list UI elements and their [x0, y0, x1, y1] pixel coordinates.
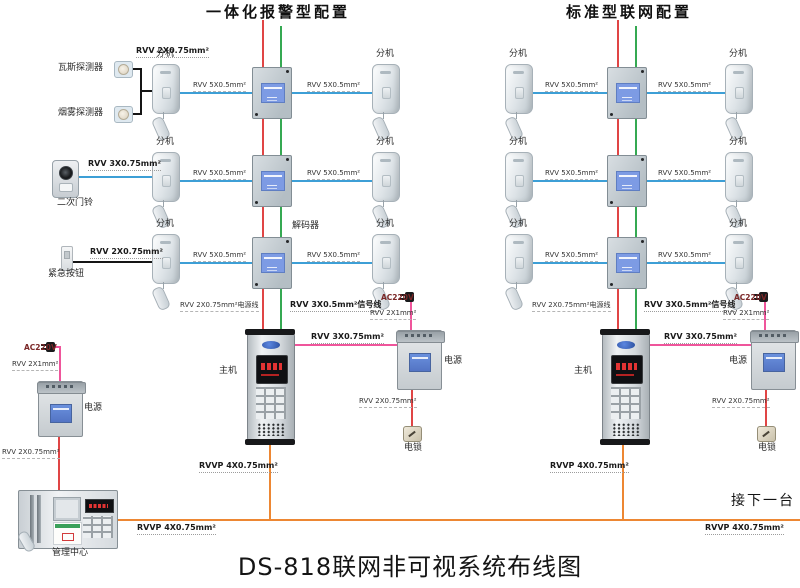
doorbell-station-icon	[52, 160, 79, 198]
extension-phone	[725, 64, 751, 140]
decoder-label-panel	[261, 253, 285, 273]
phone-body	[372, 64, 400, 114]
ac-drop-wire	[59, 346, 61, 382]
phone-body	[725, 152, 753, 202]
power-supply-box	[751, 330, 796, 390]
cable-label-rvv5x05: RVV 5X0.5mm²	[545, 252, 598, 262]
host-bus-drop	[269, 439, 271, 519]
mc-handset-rail	[37, 495, 41, 543]
cable-label-rvv3x075: RVV 3X0.75mm²	[311, 333, 384, 344]
host-label: 主机	[219, 367, 237, 377]
decoder-box	[607, 155, 647, 207]
power-line-label: RVV 2X0.75mm²电源线	[532, 302, 611, 312]
gas-detector-label: 瓦斯探测器	[58, 64, 103, 74]
extension-label: 分机	[372, 50, 398, 60]
psu-top-cap	[396, 331, 445, 343]
management-center-console	[18, 490, 118, 549]
extension-phone	[372, 152, 398, 228]
cable-label-rvv2x075: RVV 2X0.75mm²	[136, 47, 209, 58]
extension-phone	[152, 64, 178, 140]
host-power-link	[293, 344, 398, 346]
decoder-box	[252, 237, 292, 289]
handset-icon	[151, 286, 171, 312]
next-unit-label: 接下一台	[731, 494, 795, 509]
power-supply-label: 电源	[444, 357, 462, 367]
mc-keypad	[83, 516, 113, 538]
extension-phone	[505, 234, 531, 310]
electric-lock-icon	[757, 426, 776, 442]
smoke-detector-icon	[114, 106, 133, 123]
extension-phone	[372, 64, 398, 140]
host-keypad	[256, 387, 286, 419]
emergency-button-icon	[61, 246, 73, 271]
decoder-label-panel	[616, 171, 640, 191]
ac220v-label: AC220V	[24, 344, 57, 352]
cable-label-rvv3x075: RVV 3X0.75mm²	[88, 160, 161, 171]
phone-body	[725, 234, 753, 284]
power-supply-label: 电源	[729, 357, 747, 367]
extension-label: 分机	[505, 138, 531, 148]
psu-label-panel	[763, 353, 785, 372]
extension-label: 分机	[725, 138, 751, 148]
cable-label-rvv5x05: RVV 5X0.5mm²	[658, 252, 711, 262]
power-line-label: RVV 2X0.75mm²电源线	[180, 302, 259, 312]
extension-label: 分机	[152, 220, 178, 230]
decoder-label-panel	[261, 171, 285, 191]
host-speaker-grille	[612, 423, 640, 436]
psu-top-cap	[750, 331, 799, 343]
cable-label-rvv5x05: RVV 5X0.5mm²	[193, 252, 246, 262]
cable-label-rvv5x05: RVV 5X0.5mm²	[658, 170, 711, 180]
phone-body	[505, 152, 533, 202]
brand-logo-icon	[262, 341, 280, 349]
psu-vents	[46, 385, 76, 388]
extension-label: 分机	[152, 138, 178, 148]
signal-line-label: RVV 3X0.5mm²信号线	[290, 301, 381, 312]
decoder-box	[252, 155, 292, 207]
power-supply-box	[38, 381, 83, 437]
cable-label-rvv5x05: RVV 5X0.5mm²	[545, 170, 598, 180]
mc-screen	[53, 497, 81, 521]
host-bus-drop	[622, 439, 624, 519]
extension-phone	[505, 64, 531, 140]
bus-cable-label-rvvp: RVVP 4X0.75mm²	[199, 462, 278, 473]
extension-phone	[505, 152, 531, 228]
phone-body	[372, 234, 400, 284]
host-speaker-grille	[257, 423, 285, 436]
decoder-box	[607, 67, 647, 119]
mc-label-card	[53, 522, 82, 545]
psu-vents	[405, 334, 435, 337]
decoder-label-panel	[616, 83, 640, 103]
door-station-host	[247, 333, 295, 441]
brand-logo-icon	[617, 341, 635, 349]
extension-label: 分机	[725, 50, 751, 60]
electric-lock-icon	[403, 426, 422, 442]
cable-label-rvv2x075: RVV 2X0.75mm²	[90, 248, 163, 259]
extension-phone	[152, 234, 178, 310]
cable-label-rvv2x1: RVV 2X1mm²	[370, 310, 416, 320]
ac220v-label: AC220V	[381, 294, 414, 302]
network-bus-line	[116, 519, 800, 521]
host-label: 主机	[574, 367, 592, 377]
psu-label-panel	[409, 353, 431, 372]
extension-label: 分机	[505, 220, 531, 230]
host-led-display	[611, 355, 643, 384]
power-supply-label: 电源	[84, 404, 102, 414]
detector-feed-wire	[140, 90, 152, 92]
cable-label-rvv5x05: RVV 5X0.5mm²	[193, 82, 246, 92]
doorbell-wire	[77, 176, 152, 178]
handset-icon	[504, 286, 524, 312]
psu-label-panel	[50, 404, 72, 423]
phone-body	[152, 64, 180, 114]
extension-phone	[725, 152, 751, 228]
cable-label-rvv5x05: RVV 5X0.5mm²	[307, 252, 360, 262]
ac220v-label: AC220V	[734, 294, 767, 302]
bus-cable-label-rvvp: RVVP 4X0.75mm²	[705, 524, 784, 535]
wiring-diagram: 一体化报警型配置 标准型联网配置	[0, 0, 800, 588]
door-station-host	[602, 333, 650, 441]
phone-body	[372, 152, 400, 202]
power-supply-box	[397, 330, 442, 390]
cable-label-rvv5x05: RVV 5X0.5mm²	[545, 82, 598, 92]
cable-label-rvv2x075: RVV 2X0.75mm²	[359, 398, 417, 408]
decoder-label-panel	[261, 83, 285, 103]
cable-label-rvv5x05: RVV 5X0.5mm²	[658, 82, 711, 92]
cable-label-rvv2x1: RVV 2X1mm²	[12, 361, 58, 371]
bus-cable-label-rvvp: RVVP 4X0.75mm²	[550, 462, 629, 473]
decoder-label: 解码器	[292, 222, 319, 232]
emergency-button-label: 紧急按钮	[48, 270, 84, 280]
phone-body	[725, 64, 753, 114]
electric-lock-label: 电锁	[404, 444, 422, 454]
diagram-title: DS-818联网非可视系统布线图	[60, 554, 760, 580]
left-section-title: 一体化报警型配置	[206, 4, 350, 21]
electric-lock-label: 电锁	[758, 444, 776, 454]
cable-label-rvv5x05: RVV 5X0.5mm²	[307, 170, 360, 180]
bus-cable-label-rvvp: RVVP 4X0.75mm²	[137, 524, 216, 535]
cable-label-rvv2x075: RVV 2X0.75mm²	[2, 449, 60, 459]
decoder-box	[607, 237, 647, 289]
extension-label: 分机	[372, 220, 398, 230]
phone-body	[505, 234, 533, 284]
host-led-display	[256, 355, 288, 384]
phone-body	[505, 64, 533, 114]
mc-handset-rail	[30, 495, 34, 543]
cable-label-rvv2x1: RVV 2X1mm²	[723, 310, 769, 320]
phone-body	[152, 234, 180, 284]
emergency-button-wire	[71, 261, 152, 263]
psu-top-cap	[37, 382, 86, 394]
decoder-box	[252, 67, 292, 119]
smoke-detector-label: 烟雾探测器	[58, 109, 103, 119]
host-power-link	[648, 344, 752, 346]
mc-button-column	[44, 505, 51, 539]
right-section-title: 标准型联网配置	[566, 4, 692, 21]
mc-led-display	[85, 499, 114, 513]
extension-label: 分机	[505, 50, 531, 60]
psu-vents	[759, 334, 789, 337]
cable-label-rvv5x05: RVV 5X0.5mm²	[193, 170, 246, 180]
decoder-label-panel	[616, 253, 640, 273]
doorbell-label: 二次门铃	[57, 199, 93, 209]
signal-line-label: RVV 3X0.5mm²信号线	[644, 301, 735, 312]
extension-label: 分机	[725, 220, 751, 230]
cable-label-rvv3x075: RVV 3X0.75mm²	[664, 333, 737, 344]
host-keypad	[611, 387, 641, 419]
gas-detector-icon	[114, 61, 133, 78]
extension-label: 分机	[372, 138, 398, 148]
cable-label-rvv5x05: RVV 5X0.5mm²	[307, 82, 360, 92]
mgmt-power-wire	[58, 435, 60, 490]
cable-label-rvv2x075: RVV 2X0.75mm²	[712, 398, 770, 408]
